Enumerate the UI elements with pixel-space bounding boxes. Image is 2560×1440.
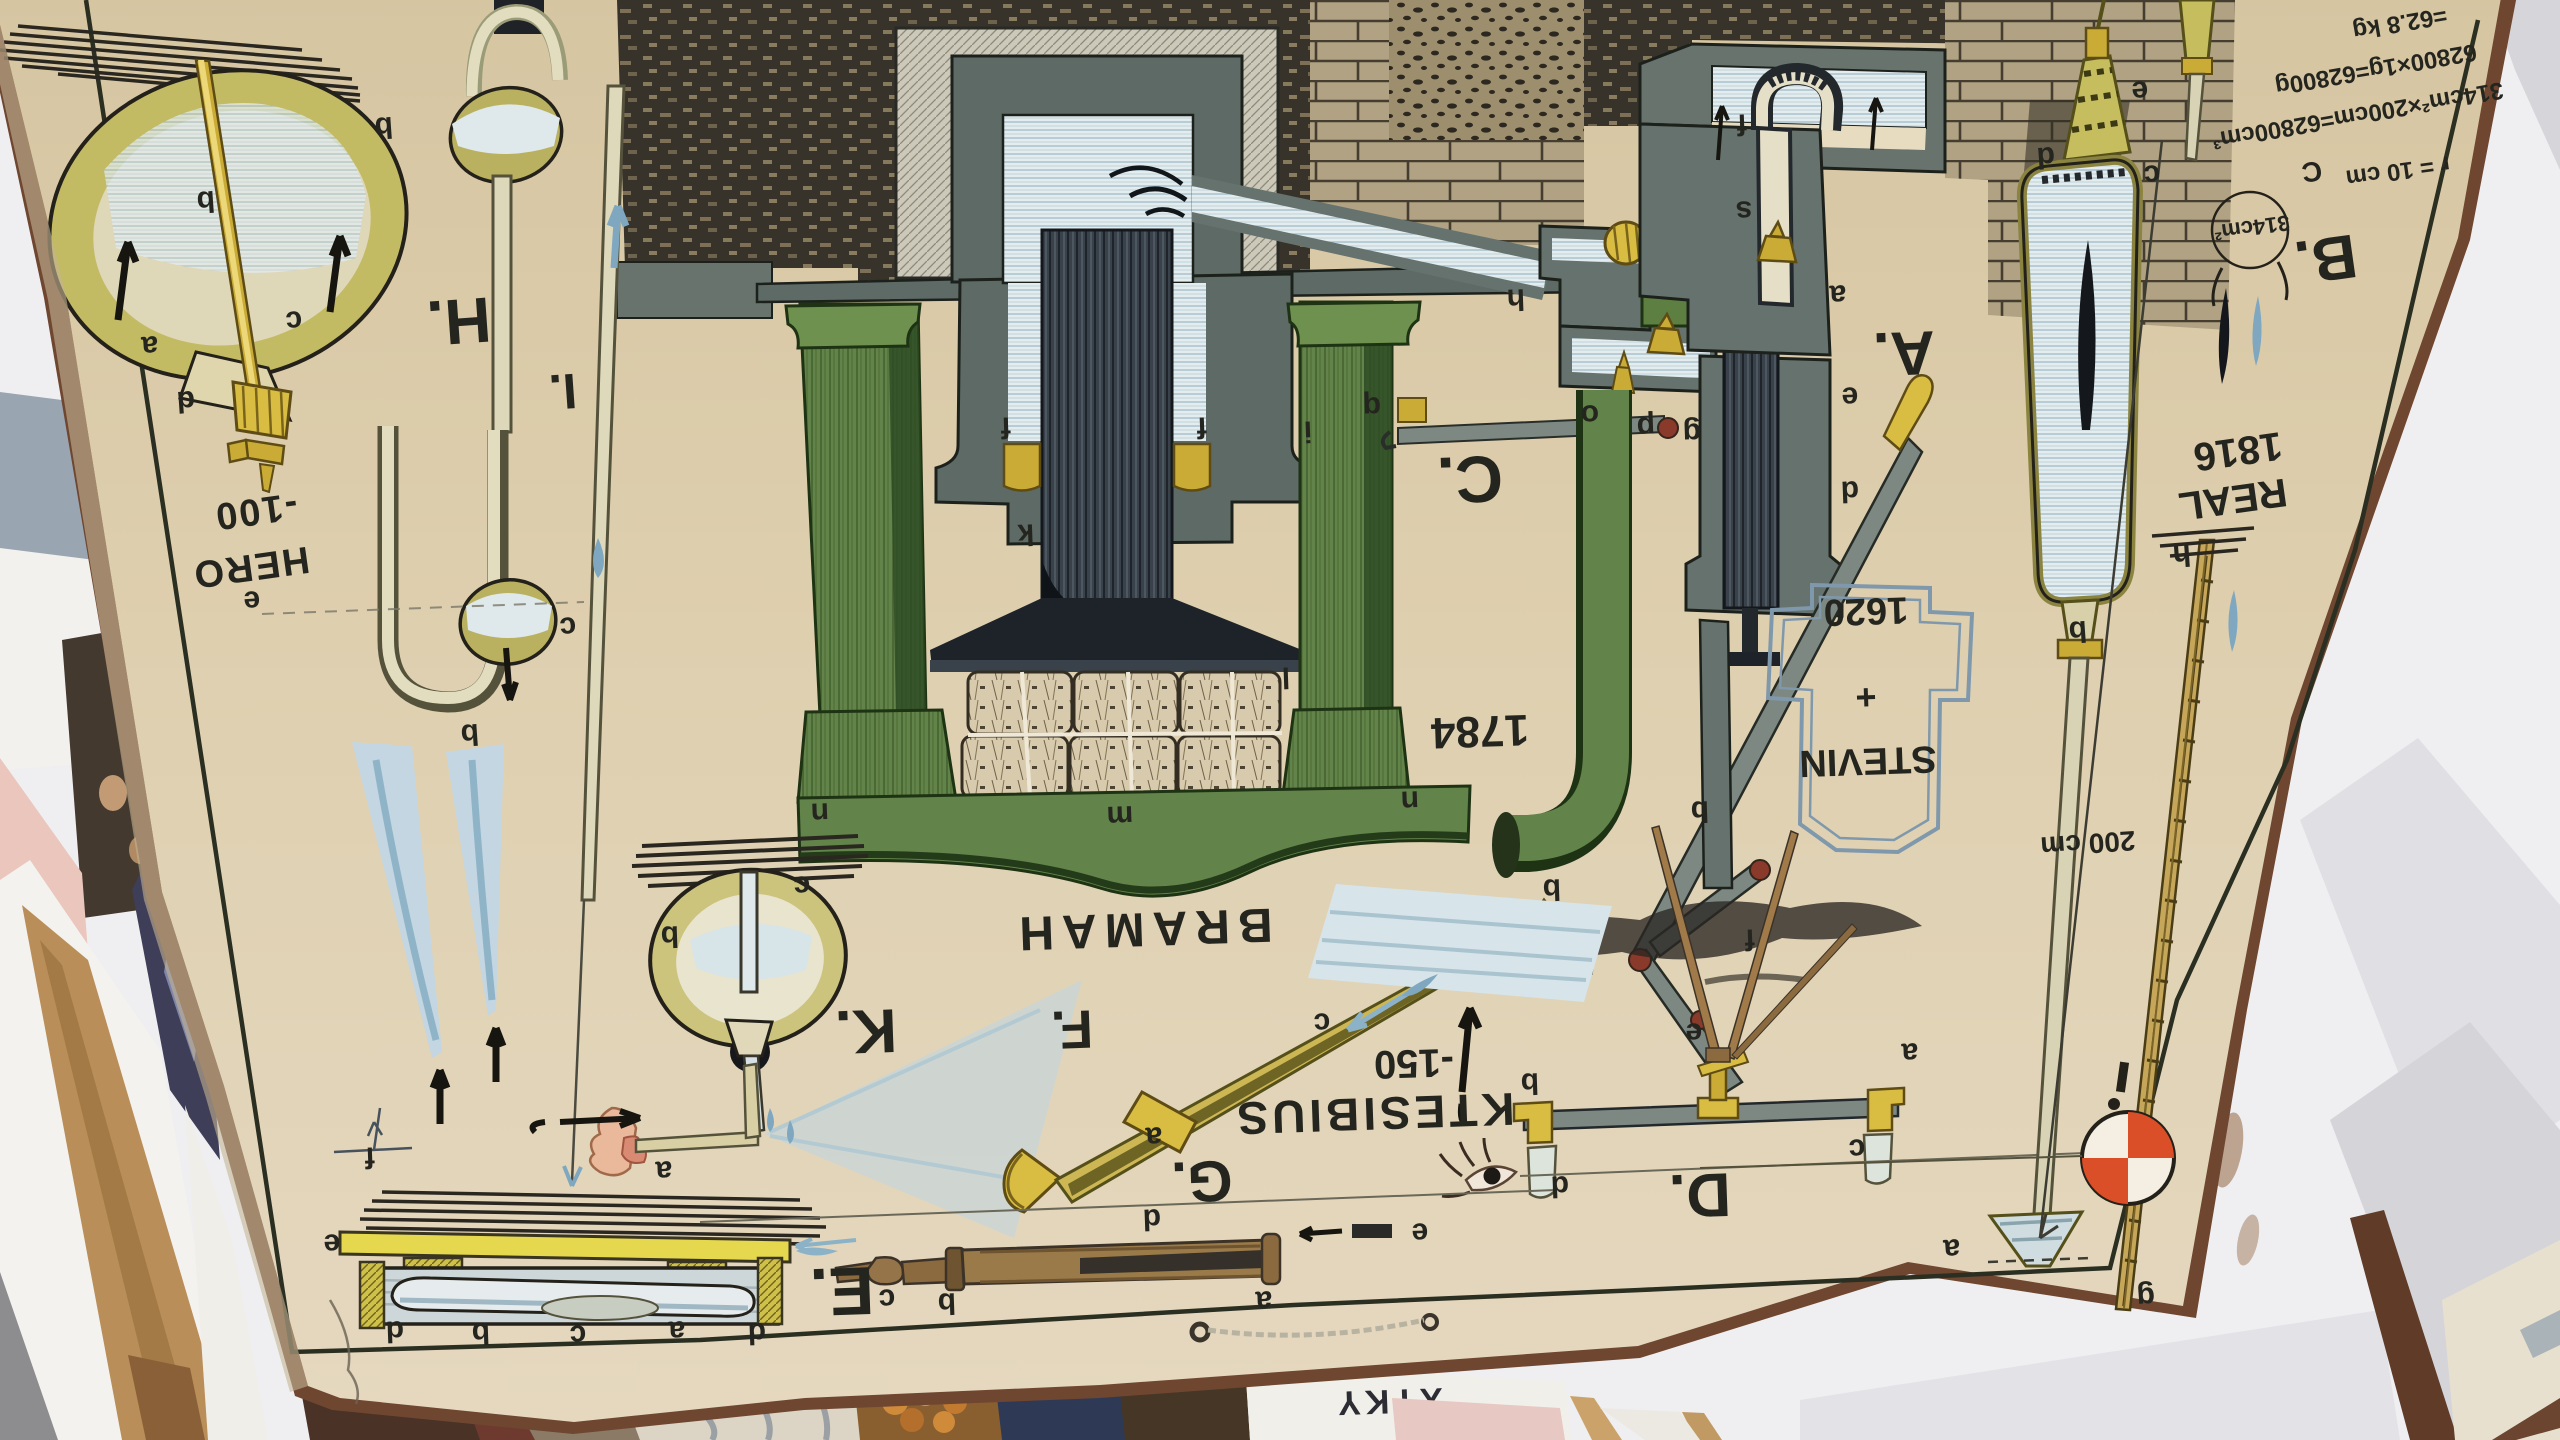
svg-text:o: o: [1580, 398, 1599, 432]
svg-text:H.: H.: [425, 283, 494, 359]
svg-text:d: d: [1840, 474, 1859, 508]
svg-text:h: h: [1506, 282, 1525, 316]
svg-text:b: b: [196, 184, 217, 218]
svg-text:a: a: [1255, 1284, 1273, 1318]
svg-text:d: d: [1550, 1169, 1569, 1203]
svg-text:a: a: [655, 1154, 673, 1188]
svg-text:D.: D.: [1668, 1159, 1732, 1230]
svg-text:c: c: [1313, 1006, 1331, 1040]
svg-text:q: q: [1362, 390, 1381, 424]
svg-text:G.: G.: [1170, 1148, 1233, 1215]
svg-text:A.: A.: [1872, 317, 1936, 388]
svg-text:a: a: [1901, 1036, 1919, 1070]
svg-text:e: e: [242, 584, 261, 618]
svg-text:a: a: [1942, 1232, 1961, 1266]
svg-text:c: c: [569, 1318, 587, 1352]
svg-text:b: b: [471, 1316, 490, 1350]
svg-text:c: c: [2142, 158, 2161, 192]
svg-text:n: n: [810, 796, 829, 830]
svg-text:KTESIBIUS: KTESIBIUS: [1232, 1083, 1515, 1145]
svg-text:b: b: [1690, 794, 1709, 828]
svg-text:b: b: [460, 717, 481, 751]
svg-text:c: c: [1848, 1132, 1866, 1166]
svg-text:e: e: [323, 1227, 341, 1261]
svg-text:c: c: [878, 1282, 896, 1316]
svg-text:d: d: [176, 384, 197, 418]
svg-text:B.: B.: [2290, 220, 2361, 297]
svg-text:200 cm: 200 cm: [2040, 825, 2137, 863]
svg-text:a: a: [1829, 278, 1847, 312]
svg-text:d: d: [1142, 1202, 1161, 1236]
svg-text:s: s: [1735, 194, 1753, 228]
svg-text:E.: E.: [809, 1252, 876, 1330]
svg-text:a: a: [140, 329, 159, 363]
svg-text:h: h: [2172, 538, 2193, 572]
svg-text:c: c: [284, 304, 303, 338]
svg-text:C: C: [2300, 155, 2324, 189]
svg-text:1620: 1620: [1823, 588, 1909, 633]
svg-text:d: d: [385, 1314, 404, 1348]
svg-text:K.: K.: [834, 995, 898, 1066]
svg-text:n: n: [1400, 784, 1419, 818]
svg-text:b: b: [937, 1286, 956, 1320]
svg-text:g: g: [1682, 416, 1701, 450]
svg-text:g: g: [2136, 1280, 2157, 1314]
svg-text:-150: -150: [1373, 1040, 1455, 1087]
svg-text:c: c: [793, 869, 811, 903]
svg-text:p: p: [1636, 410, 1655, 444]
svg-text:BRAMAH: BRAMAH: [1010, 898, 1273, 960]
svg-text:F.: F.: [1050, 998, 1094, 1059]
svg-text:e: e: [1841, 380, 1859, 414]
svg-text:e: e: [2130, 74, 2149, 108]
svg-text:l: l: [1281, 660, 1290, 693]
svg-text:a: a: [1145, 1120, 1163, 1154]
svg-text:I.: I.: [547, 363, 579, 421]
svg-text:i: i: [1303, 414, 1312, 447]
svg-text:a: a: [668, 1314, 686, 1348]
svg-text:d: d: [747, 1316, 766, 1350]
svg-text:b: b: [1542, 872, 1561, 906]
svg-text:STEVIN: STEVIN: [1799, 737, 1938, 784]
svg-text:b: b: [2068, 614, 2089, 648]
svg-text:k: k: [1017, 517, 1035, 551]
svg-text:b: b: [374, 110, 395, 144]
svg-text:1784: 1784: [1430, 705, 1530, 757]
svg-text:e: e: [1411, 1216, 1429, 1250]
svg-text:b: b: [1520, 1066, 1539, 1100]
svg-text:C.: C.: [1436, 442, 1505, 518]
svg-text:b: b: [660, 919, 679, 953]
svg-text:d: d: [2036, 140, 2057, 174]
svg-text:c: c: [558, 610, 577, 644]
svg-text:e: e: [1685, 1016, 1703, 1050]
svg-text:m: m: [1106, 799, 1134, 833]
svg-text:+: +: [1855, 677, 1877, 719]
